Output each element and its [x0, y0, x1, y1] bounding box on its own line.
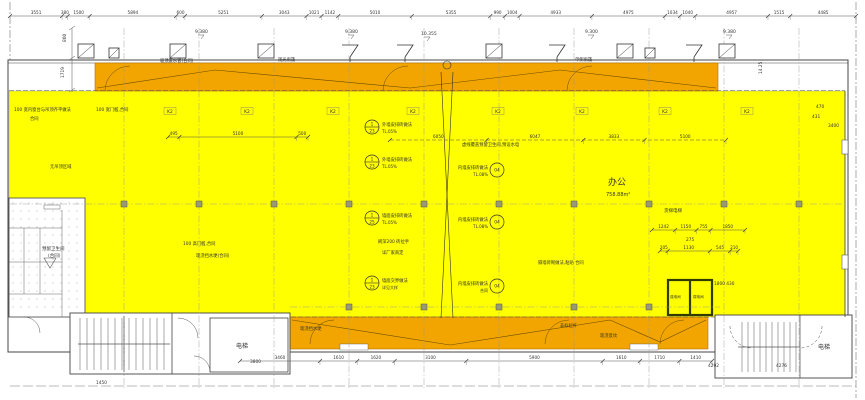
top-corridor-highlight	[95, 63, 718, 91]
tile-dot	[69, 203, 70, 204]
tile-dot	[13, 235, 14, 236]
annotation-text: 虚线覆盖预留卫生间,预设水电	[462, 141, 520, 148]
detail-callout-sheet: 23	[369, 164, 375, 169]
annotation-text: 隔墙砖砌做法,粘贴 合同	[538, 259, 584, 266]
tile-dot	[21, 283, 22, 284]
tile-dot	[69, 227, 70, 228]
annotation-text: 100 宽内窗台与吊顶齐平做法	[14, 106, 72, 113]
annotation-text: 详厂家商定	[382, 249, 404, 256]
annotation-text: 现浇反坎	[600, 332, 618, 339]
dimension-label: 1500	[73, 10, 84, 15]
dimension-label: 1610	[333, 355, 344, 360]
annotation-text: 非标栏杆	[560, 322, 578, 329]
tile-dot	[21, 307, 22, 308]
tile-dot	[77, 283, 78, 284]
office-area-label: 758.88m²	[606, 192, 630, 198]
tile-dot	[45, 211, 46, 212]
column-marker	[196, 201, 202, 207]
detail-callout-number: 04	[494, 220, 500, 226]
tile-dot	[77, 259, 78, 260]
tile-dot	[77, 267, 78, 268]
tile-dot	[45, 235, 46, 236]
window-tag: K2	[744, 109, 750, 115]
tile-dot	[77, 243, 78, 244]
restroom-area	[9, 198, 85, 317]
tile-dot	[45, 275, 46, 276]
detail-callout-sheet: 23	[369, 129, 375, 134]
weak-electric-label: 弱电间	[693, 294, 704, 299]
tile-dot	[53, 211, 54, 212]
tile-dot	[69, 283, 70, 284]
dimension-label: 6050	[433, 134, 444, 139]
callout-subtext: 合同	[480, 287, 488, 293]
tile-dot	[77, 251, 78, 252]
tile-dot	[13, 259, 14, 260]
detail-callout-sheet: 25	[369, 220, 375, 225]
door-swing-icon	[24, 317, 40, 333]
tile-dot	[29, 219, 30, 220]
tile-dot	[37, 275, 38, 276]
tile-dot	[61, 307, 62, 308]
dimension-label: 755	[700, 224, 708, 229]
column-marker	[271, 201, 277, 207]
dimension-label: 1142	[325, 10, 336, 15]
annotation-text: 470	[816, 104, 824, 110]
tile-dot	[69, 251, 70, 252]
annotation-text: 100 宽门槛,合同	[96, 106, 128, 113]
tile-dot	[37, 291, 38, 292]
tile-dot	[37, 203, 38, 204]
tile-dot	[61, 267, 62, 268]
tile-dot	[29, 243, 30, 244]
dimension-label: 1004	[507, 10, 518, 15]
tile-dot	[77, 307, 78, 308]
column-marker	[646, 304, 652, 310]
tile-dot	[37, 219, 38, 220]
elevator-room	[210, 318, 288, 372]
tile-dot	[13, 275, 14, 276]
tile-dot	[29, 299, 30, 300]
tile-dot	[45, 291, 46, 292]
detail-callout-number: 1	[371, 157, 374, 162]
office-label: 办公	[608, 176, 626, 188]
tile-dot	[37, 211, 38, 212]
tile-dot	[13, 283, 14, 284]
tile-dot	[45, 251, 46, 252]
dimension-label: 3551	[31, 10, 42, 15]
dimension-label: 500	[298, 131, 306, 136]
bottom-left-wall	[8, 317, 70, 352]
detail-callout-number: 04	[494, 284, 500, 290]
tile-dot	[69, 243, 70, 244]
tile-dot	[45, 259, 46, 260]
tile-dot	[29, 259, 30, 260]
annotation-text: 275	[686, 237, 694, 243]
tile-dot	[69, 291, 70, 292]
column-marker	[646, 201, 652, 207]
dimension-label: 1021	[309, 10, 320, 15]
window-tag: K2	[330, 109, 336, 115]
tile-dot	[53, 243, 54, 244]
tile-dot	[77, 219, 78, 220]
tile-dot	[29, 267, 30, 268]
tile-dot	[69, 275, 70, 276]
drain-funnel-icon	[342, 45, 358, 57]
tile-dot	[37, 243, 38, 244]
annotation-text: 1450	[96, 380, 107, 386]
tile-dot	[29, 235, 30, 236]
tile-dot	[45, 307, 46, 308]
tile-dot	[53, 251, 54, 252]
tile-dot	[45, 203, 46, 204]
tile-dot	[21, 251, 22, 252]
tile-dot	[21, 211, 22, 212]
dimension-label: 5894	[128, 10, 139, 15]
tile-dot	[77, 203, 78, 204]
tile-dot	[77, 275, 78, 276]
callout-subtext: TL.05%	[381, 129, 397, 134]
tile-dot	[53, 275, 54, 276]
dimension-label: 205	[660, 245, 668, 250]
column-marker	[346, 304, 352, 310]
tile-dot	[21, 259, 22, 260]
tile-dot	[77, 235, 78, 236]
tile-dot	[29, 275, 30, 276]
dimension-label: 5010	[370, 10, 381, 15]
tile-dot	[61, 251, 62, 252]
callout-text: 墙面交界做法	[382, 277, 408, 284]
annotation-text: 14.25	[758, 61, 764, 74]
tile-dot	[77, 299, 78, 300]
tile-dot	[53, 291, 54, 292]
tile-dot	[21, 299, 22, 300]
window-tag: K2	[167, 109, 173, 115]
tile-dot	[53, 219, 54, 220]
annotation-text: 刷深200 砖拉手	[378, 238, 410, 245]
dimension-label: 1242	[658, 224, 669, 229]
floorplan: 办公 758.88m² 电梯 电梯 预留卫生间 (合同) 强电间 弱电间 货梯电…	[0, 0, 865, 400]
dimension-label: 3460	[275, 355, 286, 360]
tile-dot	[13, 267, 14, 268]
annotation-text: 无吊顶区域	[50, 163, 72, 170]
column-marker	[346, 201, 352, 207]
tile-dot	[29, 283, 30, 284]
tile-dot	[69, 267, 70, 268]
tile-dot	[37, 259, 38, 260]
dimension-label: 4933	[550, 10, 561, 15]
tile-dot	[13, 211, 14, 212]
column-marker	[796, 201, 802, 207]
floorplan-canvas: 办公 758.88m² 电梯 电梯 预留卫生间 (合同) 强电间 弱电间 货梯电…	[0, 0, 865, 400]
level-marker-label: 9.300	[585, 29, 598, 35]
level-marker-label: 9.380	[345, 29, 358, 35]
drain-funnel-icon	[549, 45, 565, 57]
tile-dot	[61, 227, 62, 228]
dimension-label: 5100	[680, 134, 691, 139]
dimension-label: 5100	[233, 131, 244, 136]
callout-text: 外墙皮排砖做法	[382, 156, 413, 163]
tile-dot	[21, 275, 22, 276]
tile-dot	[69, 219, 70, 220]
dimension-label: 545	[716, 245, 724, 250]
elevator-label: 电梯	[236, 342, 248, 350]
dimension-label: 1620	[371, 355, 382, 360]
detail-callout-number: 1	[371, 213, 374, 218]
column-marker	[421, 201, 427, 207]
annotation-text: 431	[812, 114, 820, 120]
right-room-label: 电梯	[818, 343, 830, 351]
tile-dot	[69, 259, 70, 260]
tile-dot	[53, 203, 54, 204]
tile-dot	[13, 307, 14, 308]
tile-dot	[53, 259, 54, 260]
dimension-label: 990	[494, 10, 502, 15]
annotation-text: 观光雨篷	[278, 56, 296, 63]
callout-subtext: 详见大样	[382, 284, 398, 290]
level-marker-label: 9.380	[195, 29, 208, 35]
dimension-label: 4975	[623, 10, 634, 15]
tile-dot	[13, 227, 14, 228]
level-marker-label: 10.355	[421, 31, 437, 37]
dimension-label: 3043	[279, 10, 290, 15]
annotation-text: 3400	[828, 123, 839, 129]
annotation-text: 现浇挡水埂(合同)	[196, 252, 230, 259]
dimension-label: 495	[170, 131, 178, 136]
tile-dot	[13, 219, 14, 220]
corridor-opening	[340, 344, 368, 350]
tile-dot	[37, 307, 38, 308]
column-marker	[721, 201, 727, 207]
window-tag: K2	[244, 109, 250, 115]
freight-elevator-label: 货梯电梯	[664, 207, 682, 214]
tile-dot	[61, 235, 62, 236]
dimension-label: 1040	[682, 10, 693, 15]
column-marker	[421, 304, 427, 310]
callout-text: 内墙皮排砖做法	[458, 280, 489, 287]
dimension-label: 1410	[690, 355, 701, 360]
annotation-text: 800	[62, 34, 68, 42]
tile-dot	[69, 235, 70, 236]
level-marker-icon	[726, 35, 732, 39]
strong-electric-label: 强电间	[670, 294, 681, 299]
callout-text: 内墙皮排砖做法	[458, 164, 489, 171]
tile-dot	[53, 235, 54, 236]
drain-funnel-icon	[686, 45, 702, 57]
column-marker	[121, 201, 127, 207]
detail-callout-number: 1	[371, 122, 374, 127]
tile-dot	[37, 227, 38, 228]
annotation-text: 3800	[250, 359, 261, 365]
tile-dot	[61, 283, 62, 284]
dimension-label: 5251	[218, 10, 229, 15]
tile-dot	[37, 283, 38, 284]
tile-dot	[77, 211, 78, 212]
tile-dot	[21, 267, 22, 268]
tile-dot	[21, 203, 22, 204]
callout-subtext: TL.05%	[381, 220, 397, 225]
tile-dot	[53, 267, 54, 268]
level-marker-label: 9.380	[723, 29, 736, 35]
window-tag: K2	[410, 109, 416, 115]
tile-dot	[29, 307, 30, 308]
tile-dot	[21, 291, 22, 292]
tile-dot	[13, 243, 14, 244]
tile-dot	[37, 235, 38, 236]
dimension-label: 1710	[654, 355, 665, 360]
tile-dot	[77, 227, 78, 228]
annotation-text: 吸顶废水管(合同)	[160, 57, 194, 64]
tile-dot	[53, 227, 54, 228]
tile-dot	[53, 283, 54, 284]
tile-dot	[13, 299, 14, 300]
callout-text: 外墙皮排砖做法	[382, 121, 413, 128]
restroom-label2: (合同)	[48, 252, 61, 259]
annotation-text: 1719	[60, 67, 66, 78]
tile-dot	[29, 251, 30, 252]
window-tag: K2	[579, 109, 585, 115]
tile-dot	[29, 211, 30, 212]
callout-subtext: TL.05%	[381, 164, 397, 169]
column-marker	[496, 201, 502, 207]
dimension-label: 1610	[616, 355, 627, 360]
dimension-label: 5355	[446, 10, 457, 15]
dimension-label: 5900	[529, 355, 540, 360]
tile-dot	[45, 227, 46, 228]
tile-dot	[45, 243, 46, 244]
corridor-opening	[630, 344, 658, 350]
annotation-text: 单侧雨篷	[575, 56, 593, 63]
dimension-label: 1150	[680, 224, 691, 229]
tile-dot	[29, 203, 30, 204]
tile-dot	[53, 307, 54, 308]
column-marker	[571, 201, 577, 207]
tile-dot	[45, 283, 46, 284]
tile-dot	[13, 251, 14, 252]
level-marker-icon	[424, 37, 430, 41]
callout-text: 墙面皮排砖做法	[382, 212, 413, 219]
tile-dot	[61, 211, 62, 212]
window-tag: K2	[495, 109, 501, 115]
annotation-text: 1800 430	[714, 281, 735, 287]
dimension-label: 1515	[774, 10, 785, 15]
tile-dot	[77, 291, 78, 292]
tile-dot	[21, 227, 22, 228]
dimension-label: 3833	[609, 134, 620, 139]
tile-dot	[29, 291, 30, 292]
callout-subtext: TL.08%	[472, 224, 488, 229]
tile-dot	[61, 275, 62, 276]
dimension-label: 4957	[726, 10, 737, 15]
dimension-label: 380	[61, 10, 69, 15]
dimension-label: 6047	[530, 134, 541, 139]
tile-dot	[61, 259, 62, 260]
left-vertical-dims	[69, 26, 75, 92]
tile-dot	[61, 243, 62, 244]
tile-dot	[45, 299, 46, 300]
drain-funnel-icon	[397, 45, 413, 57]
callout-text: 内墙皮排砖做法	[458, 216, 489, 223]
annotation-text: 4276	[776, 363, 787, 369]
annotation-text: 4292	[708, 363, 719, 369]
tile-dot	[37, 299, 38, 300]
tile-dot	[61, 203, 62, 204]
tile-dot	[29, 227, 30, 228]
window-tag: K2	[662, 109, 668, 115]
column-marker	[571, 304, 577, 310]
annotation-text: 现浇挡水埂	[300, 325, 322, 332]
dimension-label: 600	[177, 10, 185, 15]
tile-dot	[45, 267, 46, 268]
dimension-label: 3100	[425, 355, 436, 360]
annotation-text: 100 高门槛,合同	[183, 240, 215, 247]
callout-subtext: TL.08%	[472, 172, 488, 177]
tile-dot	[69, 211, 70, 212]
detail-callout-number: 04	[494, 168, 500, 174]
dimension-label: 1850	[722, 224, 733, 229]
tile-dot	[69, 299, 70, 300]
tile-dot	[61, 291, 62, 292]
tile-dot	[21, 219, 22, 220]
dimension-label: 1130	[683, 245, 694, 250]
detail-callout-number: 1	[371, 278, 374, 283]
dimension-label: 210	[730, 245, 738, 250]
tile-dot	[37, 251, 38, 252]
dimension-label: 1034	[667, 10, 678, 15]
annotation-text: 合同	[30, 115, 39, 122]
tile-dot	[69, 307, 70, 308]
tile-dot	[61, 299, 62, 300]
tile-dot	[21, 235, 22, 236]
tile-dot	[13, 203, 14, 204]
tile-dot	[21, 243, 22, 244]
tile-dot	[37, 267, 38, 268]
tile-dot	[53, 299, 54, 300]
tile-dot	[61, 219, 62, 220]
tile-dot	[13, 291, 14, 292]
dimension-label: 4485	[818, 10, 829, 15]
level-marker-icon	[588, 35, 594, 39]
tile-dot	[45, 219, 46, 220]
detail-callout-sheet: 23	[369, 285, 375, 290]
column-marker	[496, 304, 502, 310]
